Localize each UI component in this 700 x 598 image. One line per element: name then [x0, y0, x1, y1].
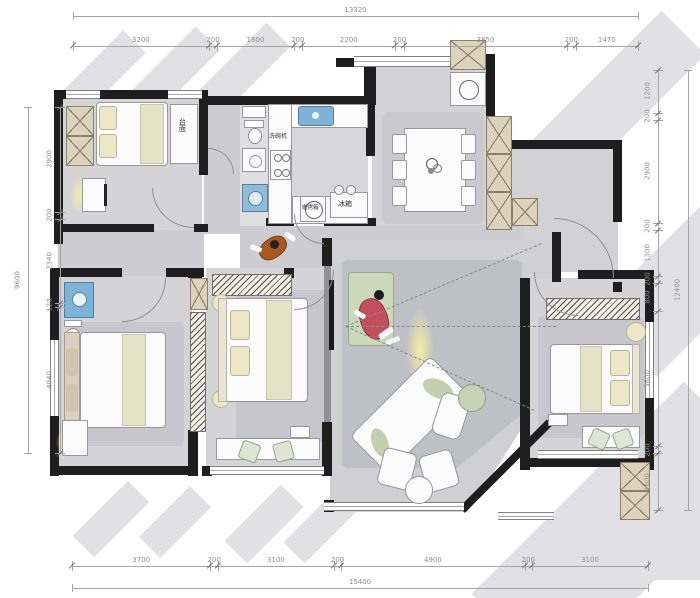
- dimension-line: [60, 107, 61, 453]
- dim-total-label: 15400: [349, 579, 371, 586]
- dim-segment-label: 4900: [424, 557, 442, 564]
- dim-segment-label: 1470: [598, 37, 616, 44]
- dim-segment-label: 200: [522, 557, 535, 564]
- dim-segment-label: 200: [645, 443, 652, 456]
- dim-segment-label: 200: [331, 557, 344, 564]
- dimension-line: [72, 566, 648, 567]
- dim-segment-label: 2900: [47, 150, 54, 168]
- dim-segment-label: 3700: [132, 557, 150, 564]
- dimension-tick: [638, 12, 639, 20]
- dimension-tick: [72, 584, 73, 592]
- dim-segment-label: 3100: [581, 557, 599, 564]
- dim-segment-label: 200: [565, 37, 578, 44]
- dim-segment-label: 2340: [47, 252, 54, 270]
- dim-total-label: 12400: [675, 279, 682, 301]
- dim-segment-label: 200: [291, 37, 304, 44]
- dim-segment-label: 200: [393, 37, 406, 44]
- dimension-tick: [684, 70, 692, 71]
- dimension-tick: [648, 584, 649, 592]
- dimension-total-line: [72, 588, 648, 589]
- dim-segment-label: 200: [645, 273, 652, 286]
- dim-segment-label: 3200: [132, 37, 150, 44]
- dim-segment-label: 3800: [645, 370, 652, 388]
- dim-total-label: 9600: [15, 271, 22, 289]
- dim-segment-label: 200: [47, 208, 54, 221]
- dim-segment-label: 3100: [267, 557, 285, 564]
- floor-plan-canvas: 洗碗机 嵌烤箱 冰箱 台面: [0, 0, 700, 598]
- dim-segment-label: 1800: [246, 37, 264, 44]
- dimension-total-line: [688, 70, 689, 510]
- dim-segment-label: 3850: [477, 37, 495, 44]
- dimension-tick: [73, 12, 74, 20]
- dim-segment-label: 200: [645, 219, 652, 232]
- dim-total-label: 13320: [344, 7, 366, 14]
- dim-segment-label: 1200: [645, 82, 652, 100]
- dimension-tick: [24, 453, 32, 454]
- dimension-line: [73, 46, 638, 47]
- dimension-total-line: [73, 16, 638, 17]
- dimension-tick: [24, 107, 32, 108]
- dimension-total-line: [28, 107, 29, 453]
- dim-segment-label: 1300: [645, 244, 652, 262]
- dim-segment-label: 800: [645, 290, 652, 303]
- dim-segment-label: 120: [47, 299, 54, 312]
- dim-segment-label: 2200: [340, 37, 358, 44]
- dim-segment-label: 200: [207, 557, 220, 564]
- dimension-annotations: 3200200180020022002003850200147013320370…: [0, 0, 700, 598]
- dim-segment-label: 1600: [645, 473, 652, 491]
- dim-segment-label: 200: [645, 109, 652, 122]
- dim-segment-label: 4040: [47, 371, 54, 389]
- dim-segment-label: 200: [206, 37, 219, 44]
- dimension-tick: [684, 510, 692, 511]
- dim-segment-label: 2900: [645, 162, 652, 180]
